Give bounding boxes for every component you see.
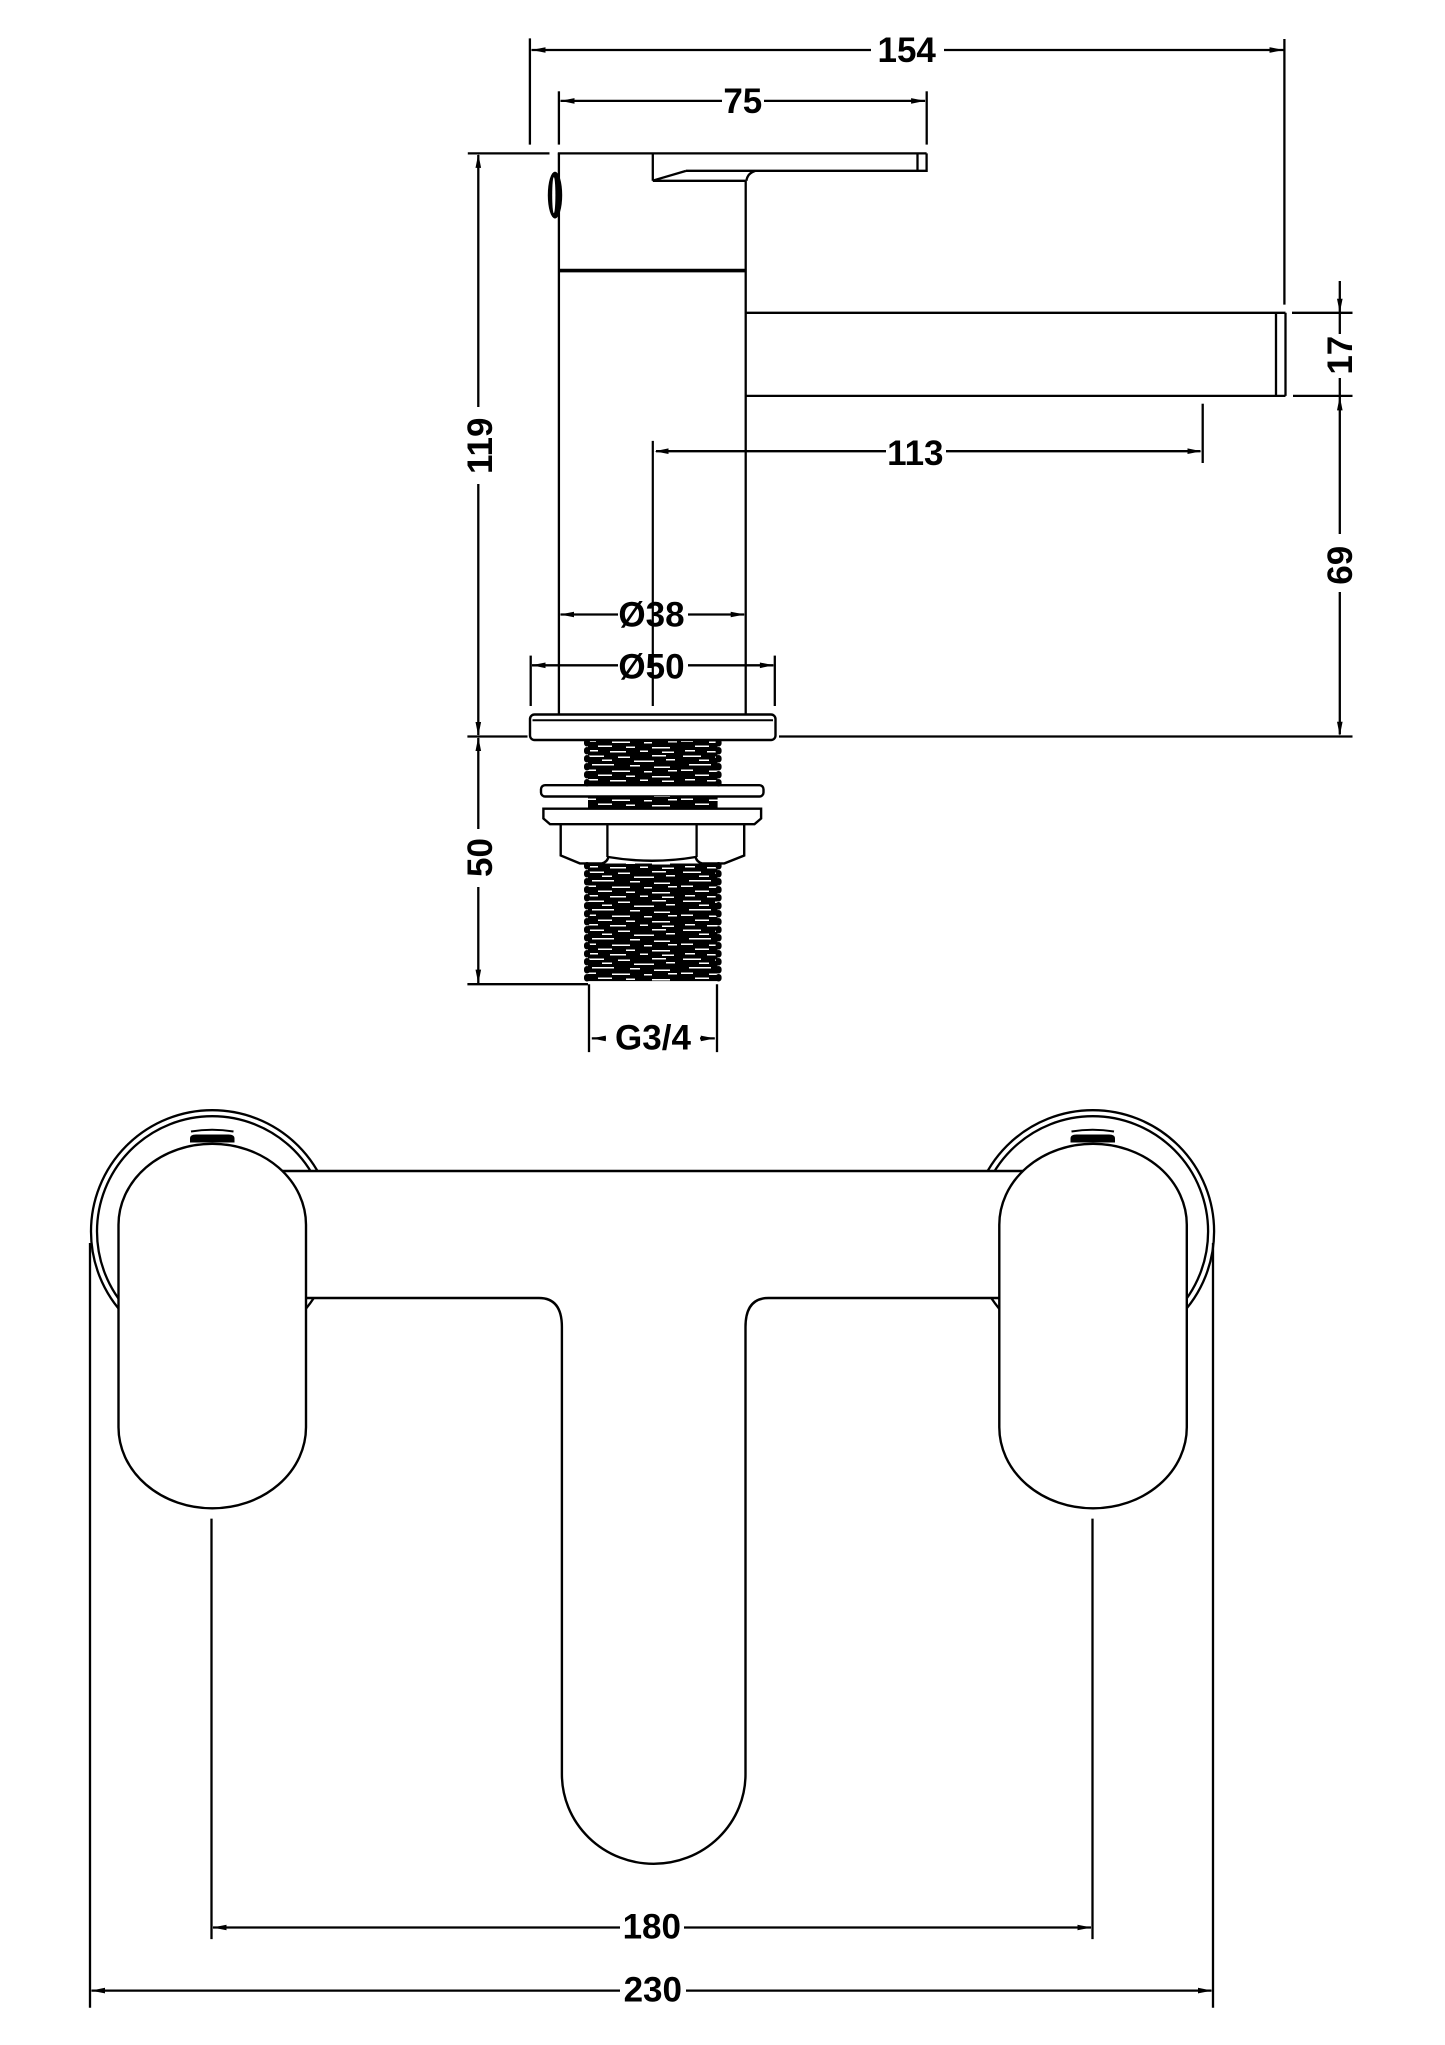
svg-text:230: 230	[624, 1970, 682, 2009]
svg-text:50: 50	[461, 838, 500, 877]
svg-text:154: 154	[877, 31, 936, 70]
svg-text:G3/4: G3/4	[615, 1019, 691, 1058]
svg-text:75: 75	[723, 82, 762, 121]
svg-text:119: 119	[461, 418, 500, 474]
svg-text:Ø38: Ø38	[618, 596, 684, 635]
svg-text:17: 17	[1321, 336, 1360, 375]
svg-text:69: 69	[1321, 546, 1360, 585]
svg-text:180: 180	[623, 1908, 681, 1947]
svg-text:113: 113	[887, 434, 943, 473]
svg-text:Ø50: Ø50	[618, 647, 684, 686]
